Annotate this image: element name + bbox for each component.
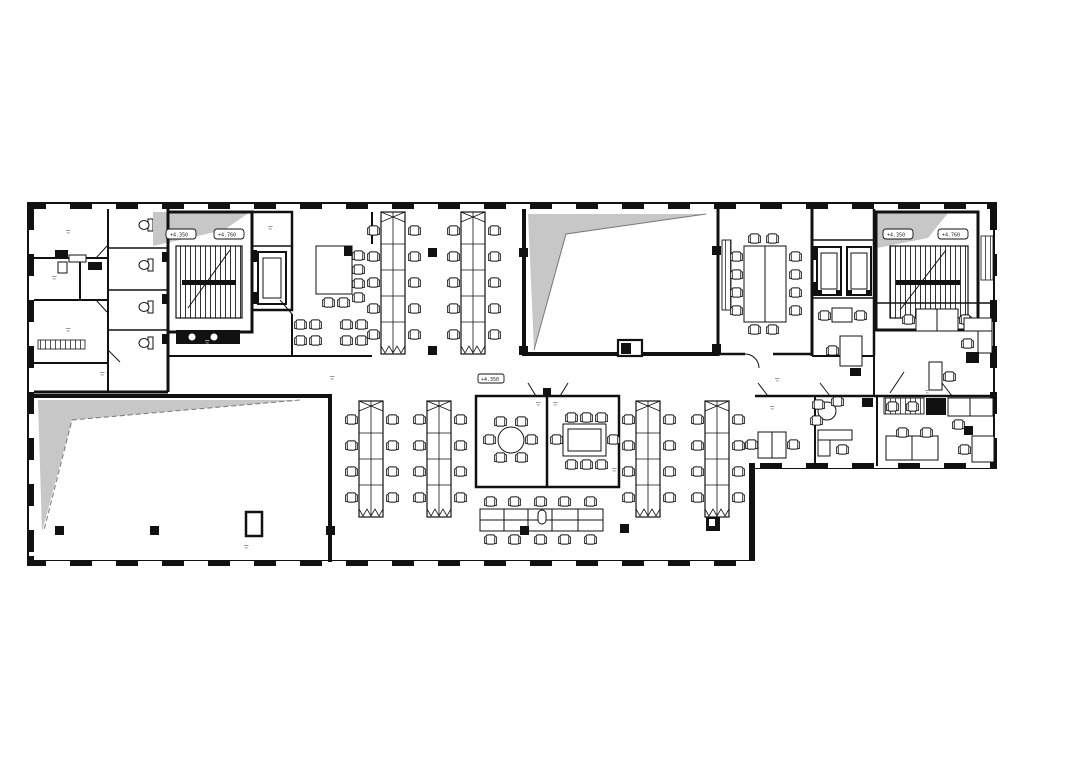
facade-south-west bbox=[27, 560, 755, 566]
stair-west-tag-a: +4.350 bbox=[166, 229, 196, 239]
lift-lobby-east bbox=[812, 209, 874, 356]
meeting-room-rect bbox=[550, 402, 619, 469]
meeting-room-round bbox=[483, 402, 540, 462]
conference-room bbox=[718, 209, 812, 381]
room-label-mark bbox=[66, 328, 71, 331]
floor-level-tag: +4.350 bbox=[478, 374, 504, 383]
l-desk bbox=[818, 430, 852, 440]
elevator-icon bbox=[817, 247, 841, 295]
stair-east-tag-a: +4.350 bbox=[883, 229, 913, 239]
lounge-group-east bbox=[340, 320, 367, 345]
room-label-mark bbox=[612, 468, 617, 471]
room-label-mark bbox=[536, 402, 541, 405]
toilet-icon bbox=[139, 337, 153, 349]
toilet-icon bbox=[139, 301, 153, 313]
round-table bbox=[498, 427, 524, 453]
room-label-mark bbox=[52, 276, 57, 279]
stool-icon bbox=[352, 279, 364, 288]
column bbox=[428, 248, 437, 257]
floor-plan-drawing: +4.350 +4.760 bbox=[0, 0, 1072, 768]
room-label-mark bbox=[553, 402, 558, 405]
column bbox=[520, 526, 529, 535]
room-label-mark bbox=[268, 226, 273, 229]
desk-bench bbox=[413, 401, 466, 517]
lounge-group-west bbox=[294, 320, 321, 345]
elevation-label: +4.760 bbox=[218, 233, 236, 239]
column bbox=[519, 248, 528, 257]
room-label-mark bbox=[244, 545, 249, 548]
facade-north bbox=[27, 202, 997, 209]
stool-icon bbox=[352, 293, 364, 302]
column bbox=[964, 426, 973, 435]
column bbox=[519, 346, 528, 355]
room-label-mark bbox=[770, 406, 775, 409]
room-label-mark bbox=[100, 372, 105, 375]
elevation-label: +4.350 bbox=[887, 233, 905, 239]
desk-bench bbox=[447, 212, 500, 354]
open-office-north bbox=[367, 212, 500, 355]
room-label-mark bbox=[330, 376, 335, 379]
elevation-label: +4.760 bbox=[942, 233, 960, 239]
facade-step-wall bbox=[749, 463, 755, 566]
corner-desk bbox=[978, 331, 992, 353]
room-label-mark bbox=[925, 390, 930, 393]
column bbox=[326, 526, 335, 535]
column bbox=[428, 346, 437, 355]
column bbox=[150, 526, 159, 535]
facade-west bbox=[27, 202, 34, 566]
desk-divider bbox=[538, 510, 546, 524]
radiator bbox=[981, 236, 993, 280]
desk-bench bbox=[691, 401, 744, 517]
desk bbox=[929, 362, 942, 390]
stool-icon bbox=[352, 251, 364, 260]
floor-plan-sheet: +4.350 +4.760 bbox=[0, 0, 1072, 768]
open-office-south bbox=[345, 401, 744, 544]
meeting-rooms-center bbox=[476, 383, 620, 487]
credenza bbox=[722, 240, 731, 310]
column bbox=[55, 526, 64, 535]
desk-bench bbox=[622, 401, 675, 517]
void-shade bbox=[528, 214, 706, 350]
stair-west-tag-b: +4.760 bbox=[214, 229, 244, 239]
stool-icon bbox=[352, 265, 364, 274]
column bbox=[620, 524, 629, 533]
desk-bench bbox=[367, 212, 420, 354]
stair-east-tag-b: +4.760 bbox=[938, 229, 968, 239]
room-label-mark bbox=[66, 230, 71, 233]
stool-icon bbox=[322, 298, 334, 307]
printer bbox=[966, 352, 979, 363]
void-south bbox=[34, 396, 335, 562]
lobby-desk bbox=[832, 308, 852, 322]
corner-desk bbox=[964, 318, 992, 331]
cabinet bbox=[926, 398, 946, 415]
toilet-icon bbox=[139, 219, 153, 231]
elevation-label: +4.350 bbox=[481, 377, 499, 383]
lift-west bbox=[252, 212, 292, 356]
elevation-label: +4.350 bbox=[170, 233, 188, 239]
l-desk bbox=[818, 440, 830, 456]
facade-south-east bbox=[749, 463, 996, 469]
kitchen-breakout bbox=[280, 212, 372, 379]
elevator-icon bbox=[847, 247, 871, 295]
desk bbox=[840, 336, 862, 366]
floor-opening bbox=[246, 512, 262, 536]
desk bbox=[972, 436, 994, 462]
desk-bench bbox=[345, 401, 398, 517]
toilet-icon bbox=[139, 259, 153, 271]
stool-icon bbox=[337, 298, 349, 307]
void-north bbox=[519, 209, 721, 356]
hot-desk-row bbox=[480, 497, 603, 544]
offices-southeast bbox=[745, 383, 996, 466]
room-label-mark bbox=[775, 378, 780, 381]
